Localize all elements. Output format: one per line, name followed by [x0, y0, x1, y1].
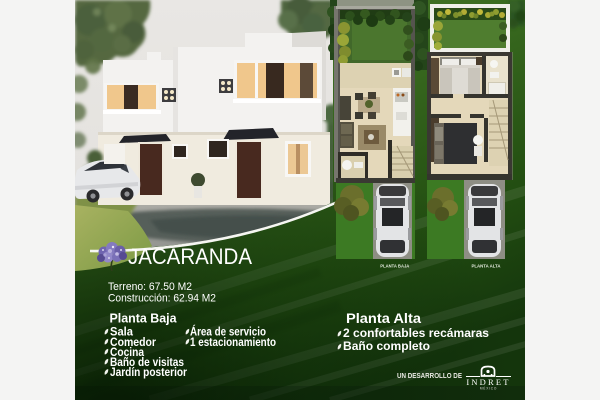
- svg-text:INDRET: INDRET: [466, 377, 510, 387]
- svg-text:Terreno: 67.50 M2: Terreno: 67.50 M2: [108, 281, 192, 293]
- svg-text:2 confortables recámaras: 2 confortables recámaras: [343, 326, 489, 340]
- svg-text:Planta Alta: Planta Alta: [346, 311, 422, 326]
- svg-text:PLANTA ALTA: PLANTA ALTA: [472, 264, 502, 269]
- svg-text:1 estacionamiento: 1 estacionamiento: [190, 337, 276, 349]
- svg-text:PLANTA BAJA: PLANTA BAJA: [380, 264, 410, 269]
- svg-text:JACARANDA: JACARANDA: [128, 244, 252, 269]
- svg-text:Jardín posterior: Jardín posterior: [110, 367, 187, 379]
- svg-text:Planta Baja: Planta Baja: [110, 311, 178, 326]
- svg-text:Baño completo: Baño completo: [343, 339, 430, 353]
- svg-text:MÉXICO: MÉXICO: [480, 386, 497, 391]
- svg-text:Construcción: 62.94 M2: Construcción: 62.94 M2: [108, 293, 216, 305]
- svg-text:UN DESARROLLO DE: UN DESARROLLO DE: [397, 373, 462, 380]
